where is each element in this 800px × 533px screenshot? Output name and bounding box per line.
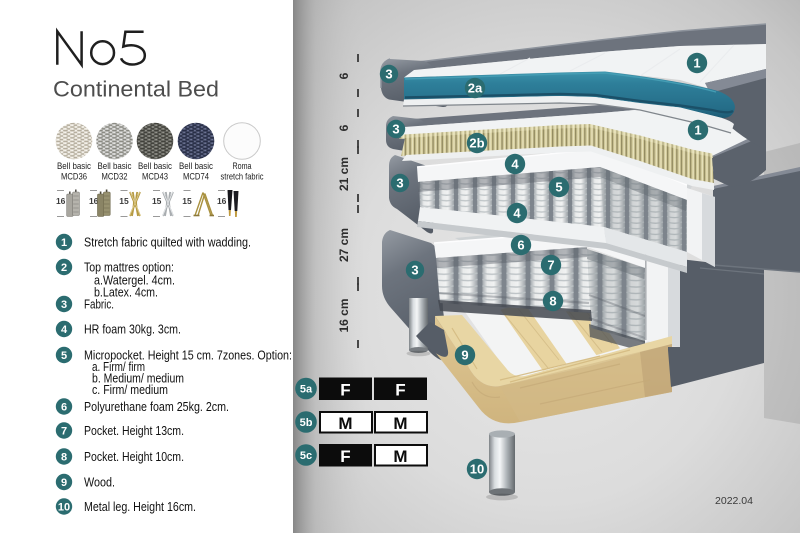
svg-text:1: 1 [693, 56, 700, 71]
svg-text:HR foam 30kg. 3cm.: HR foam 30kg. 3cm. [84, 322, 181, 337]
svg-text:F: F [395, 381, 405, 400]
svg-text:3: 3 [396, 176, 403, 191]
svg-text:4: 4 [511, 157, 519, 172]
svg-text:6: 6 [61, 402, 67, 414]
svg-text:MCD32: MCD32 [102, 172, 128, 183]
svg-text:16: 16 [56, 196, 66, 206]
svg-text:3: 3 [61, 299, 67, 311]
svg-text:stretch fabric: stretch fabric [221, 172, 264, 183]
svg-text:Bell basic: Bell basic [98, 161, 132, 172]
svg-text:Pocket. Height 10cm.: Pocket. Height 10cm. [84, 449, 184, 464]
svg-text:Bell basic: Bell basic [57, 161, 91, 172]
svg-text:3: 3 [411, 263, 418, 278]
svg-text:2b: 2b [469, 136, 484, 151]
svg-text:5b: 5b [300, 417, 313, 429]
svg-text:MCD43: MCD43 [142, 172, 168, 183]
svg-text:9: 9 [61, 477, 67, 489]
svg-text:Roma: Roma [233, 161, 253, 172]
svg-text:Bell basic: Bell basic [179, 161, 213, 172]
svg-text:c. Firm/ medium: c. Firm/ medium [92, 382, 168, 397]
svg-text:Polyurethane foam 25kg. 2cm.: Polyurethane foam 25kg. 2cm. [84, 399, 229, 414]
svg-text:Stretch fabric quilted with wa: Stretch fabric quilted with wadding. [84, 235, 251, 250]
svg-text:27 cm: 27 cm [337, 228, 351, 262]
svg-text:1: 1 [61, 237, 67, 249]
svg-text:Fabric.: Fabric. [84, 297, 114, 312]
svg-text:Continental Bed: Continental Bed [53, 77, 219, 102]
svg-text:5c: 5c [300, 450, 312, 462]
svg-text:16 cm: 16 cm [337, 298, 351, 332]
svg-text:3: 3 [385, 67, 392, 82]
svg-text:6: 6 [517, 238, 524, 253]
svg-text:7: 7 [547, 258, 554, 273]
svg-text:15: 15 [152, 196, 162, 206]
svg-text:4: 4 [513, 206, 521, 221]
svg-text:16: 16 [217, 196, 227, 206]
svg-text:MCD74: MCD74 [183, 172, 209, 183]
svg-text:10: 10 [58, 502, 70, 514]
svg-text:M: M [393, 414, 407, 433]
svg-text:F: F [340, 447, 350, 466]
svg-text:Wood.: Wood. [84, 475, 115, 490]
svg-text:5a: 5a [300, 384, 313, 396]
svg-text:Pocket. Height 13cm.: Pocket. Height 13cm. [84, 423, 184, 438]
svg-text:3: 3 [392, 122, 399, 137]
svg-text:21 cm: 21 cm [337, 157, 351, 191]
svg-text:MCD36: MCD36 [61, 172, 87, 183]
svg-text:10: 10 [470, 462, 484, 477]
svg-text:7: 7 [61, 426, 67, 438]
svg-text:9: 9 [461, 348, 468, 363]
svg-text:4: 4 [61, 324, 68, 336]
svg-text:15: 15 [182, 196, 192, 206]
svg-text:2a: 2a [468, 81, 483, 96]
svg-text:M: M [338, 414, 352, 433]
svg-text:8: 8 [61, 452, 67, 464]
svg-text:M: M [393, 447, 407, 466]
svg-text:8: 8 [549, 294, 556, 309]
svg-text:5: 5 [555, 180, 562, 195]
svg-text:6: 6 [337, 124, 351, 131]
svg-text:1: 1 [694, 123, 701, 138]
svg-text:Bell basic: Bell basic [138, 161, 172, 172]
svg-text:Metal leg. Height 16cm.: Metal leg. Height 16cm. [84, 499, 196, 514]
svg-text:2022.04: 2022.04 [715, 495, 753, 507]
svg-text:F: F [340, 381, 350, 400]
svg-text:15: 15 [119, 196, 129, 206]
svg-text:6: 6 [337, 72, 351, 79]
svg-text:5: 5 [61, 350, 67, 362]
svg-text:2: 2 [61, 262, 67, 274]
